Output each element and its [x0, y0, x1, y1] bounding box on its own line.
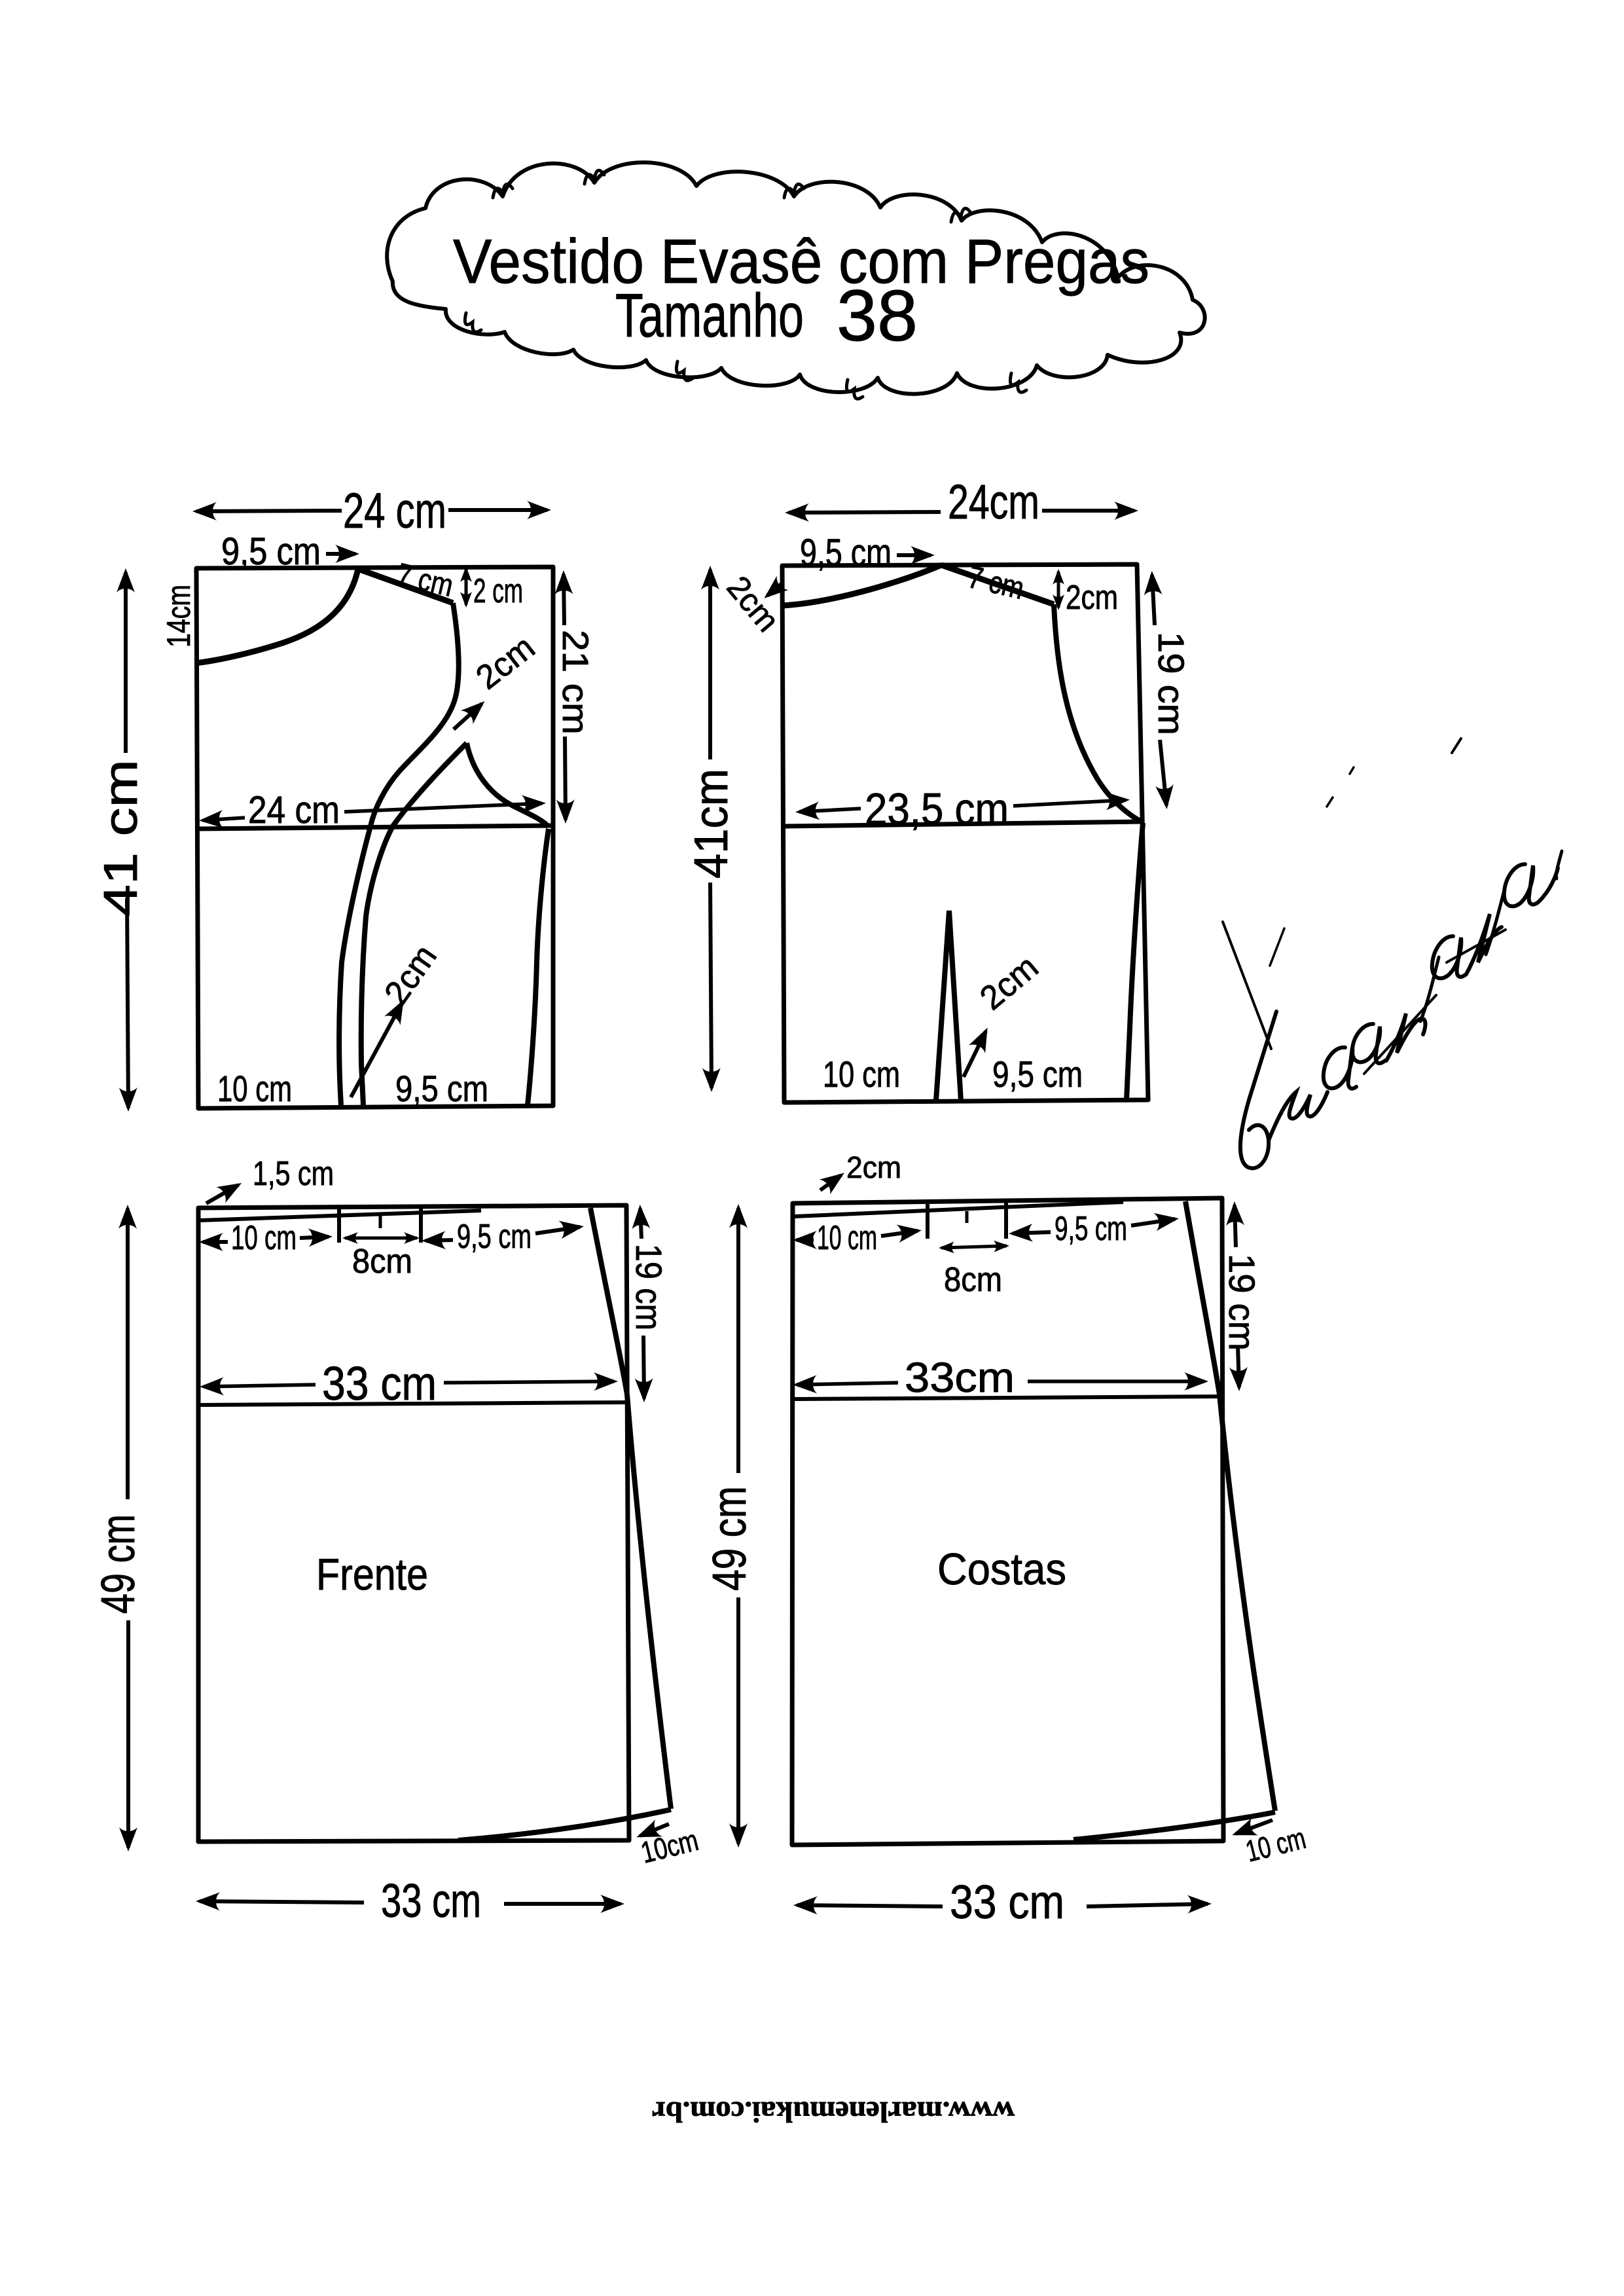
svg-text:www.marlenemukai.com.br: www.marlenemukai.com.br	[652, 2096, 1015, 2128]
svg-text:Frente: Frente	[316, 1550, 428, 1599]
svg-text:41cm: 41cm	[685, 769, 738, 879]
svg-text:2cm: 2cm	[1066, 579, 1118, 617]
svg-text:19 cm: 19 cm	[628, 1244, 670, 1330]
svg-text:21 cm: 21 cm	[555, 630, 596, 735]
svg-text:33 cm: 33 cm	[322, 1358, 437, 1410]
svg-text:Costas: Costas	[937, 1544, 1066, 1594]
svg-text:24cm: 24cm	[948, 475, 1039, 529]
svg-text:33 cm: 33 cm	[381, 1875, 481, 1927]
svg-text:Tamanho: Tamanho	[615, 281, 804, 350]
svg-text:14cm: 14cm	[160, 585, 197, 647]
svg-text:33cm: 33cm	[905, 1354, 1015, 1401]
svg-text:8cm: 8cm	[352, 1243, 412, 1281]
svg-text:10 cm: 10 cm	[817, 1219, 877, 1257]
svg-text:10 cm: 10 cm	[823, 1053, 900, 1095]
svg-text:9,5 cm: 9,5 cm	[992, 1053, 1083, 1095]
svg-text:10 cm: 10 cm	[217, 1068, 292, 1109]
svg-text:24 cm: 24 cm	[248, 789, 340, 831]
svg-text:41 cm: 41 cm	[95, 759, 147, 917]
svg-text:1,5 cm: 1,5 cm	[253, 1155, 334, 1193]
svg-text:9,5 cm: 9,5 cm	[395, 1068, 488, 1109]
svg-text:23,5 cm: 23,5 cm	[865, 784, 1009, 834]
svg-text:49 cm: 49 cm	[704, 1486, 756, 1591]
svg-text:49 cm: 49 cm	[92, 1514, 145, 1614]
svg-text:9,5 cm: 9,5 cm	[800, 532, 892, 574]
svg-text:9,5 cm: 9,5 cm	[457, 1218, 532, 1256]
svg-text:2 cm: 2 cm	[473, 572, 523, 610]
svg-text:33 cm: 33 cm	[950, 1876, 1064, 1929]
svg-text:19 cm: 19 cm	[1221, 1254, 1263, 1351]
svg-text:38: 38	[837, 276, 918, 356]
svg-text:9,5 cm: 9,5 cm	[221, 530, 321, 573]
svg-text:24 cm: 24 cm	[343, 483, 446, 539]
svg-text:10 cm: 10 cm	[231, 1219, 297, 1257]
svg-text:8cm: 8cm	[944, 1261, 1002, 1299]
svg-text:9,5 cm: 9,5 cm	[1055, 1210, 1127, 1248]
svg-text:19 cm: 19 cm	[1151, 632, 1192, 735]
svg-text:2cm: 2cm	[846, 1150, 901, 1184]
